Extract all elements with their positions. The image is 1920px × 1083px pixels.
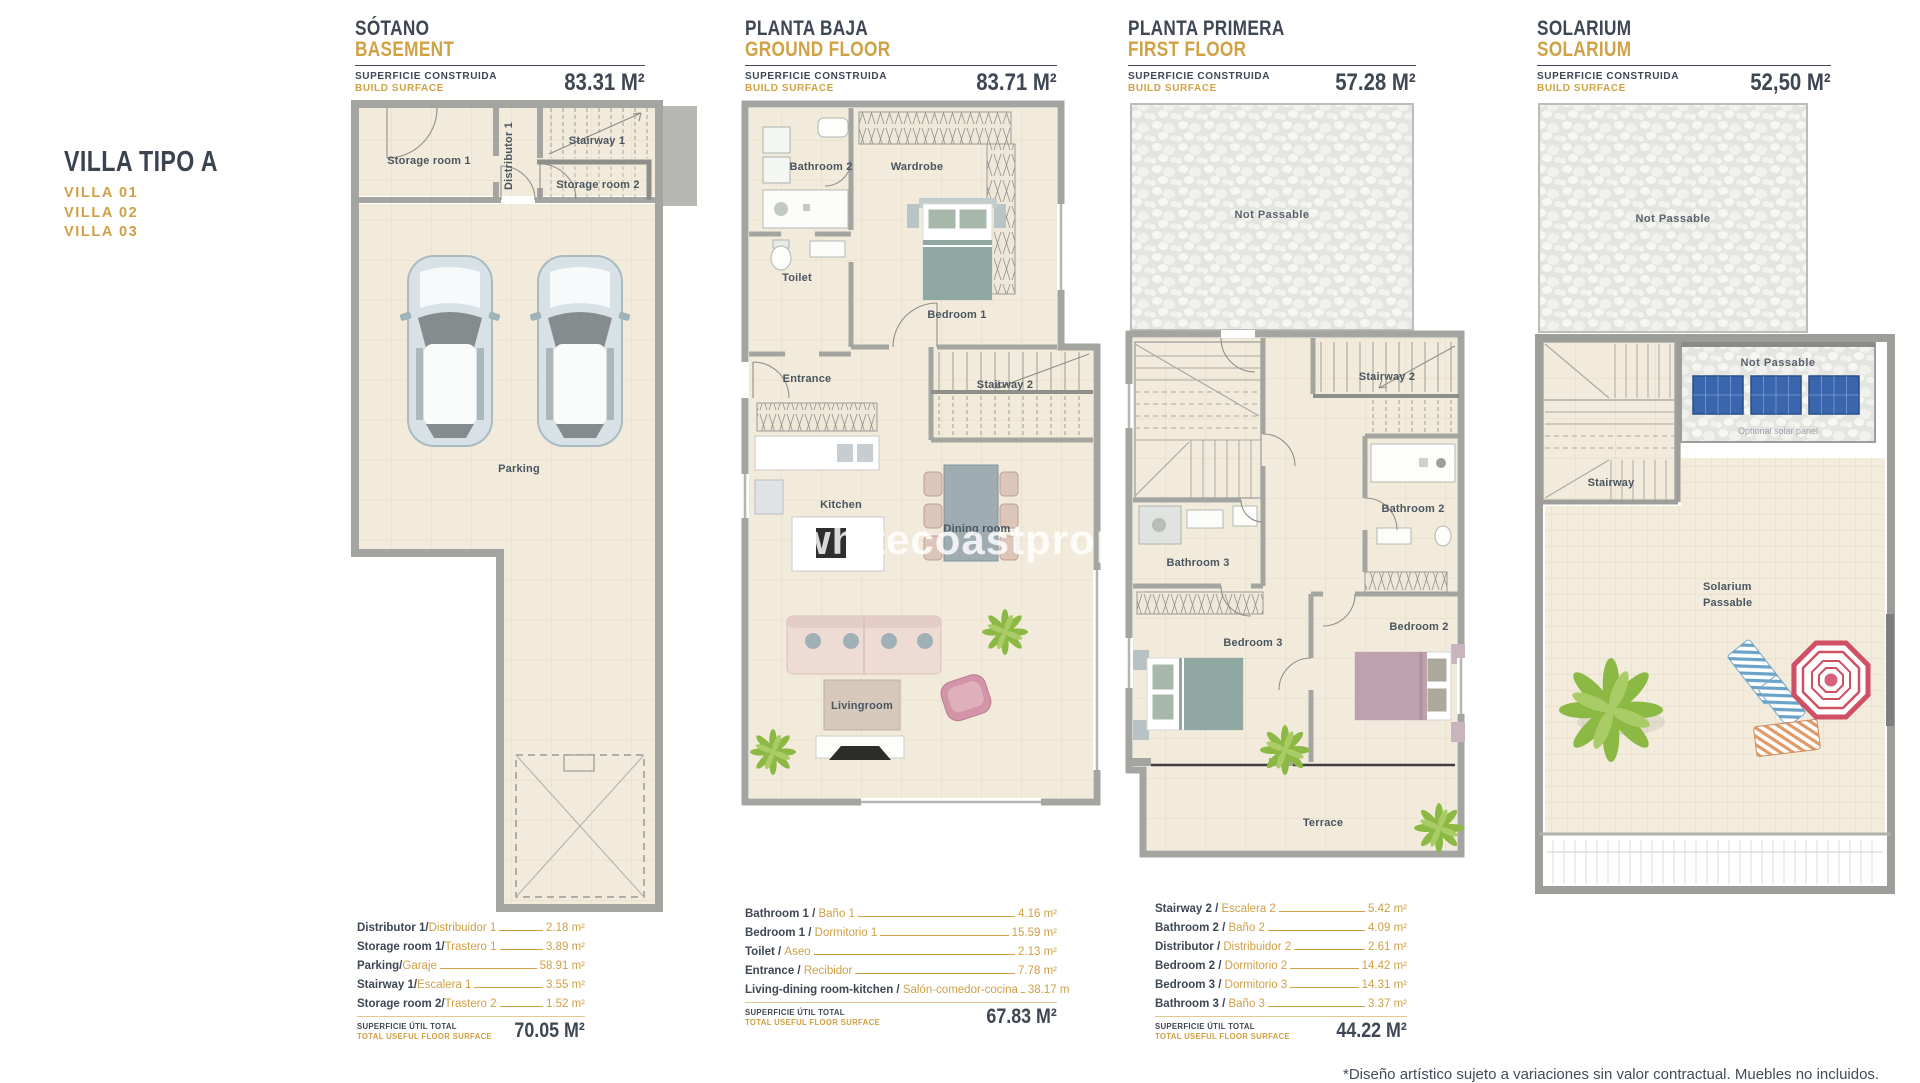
solar-panel-icon bbox=[1751, 376, 1801, 414]
surface-label-es: SUPERFICIE CONSTRUIDA bbox=[745, 71, 887, 83]
surface-label-en: BUILD SURFACE bbox=[1537, 83, 1679, 95]
legend-room-es: Baño 2 bbox=[1228, 922, 1264, 934]
room-label-storage1: Storage room 1 bbox=[387, 155, 471, 167]
wardrobe-hatch bbox=[859, 112, 1011, 144]
legend-room-en: Bathroom 2 / bbox=[1155, 922, 1228, 934]
total-label-en: TOTAL USEFUL FLOOR SURFACE bbox=[1155, 1032, 1290, 1042]
plan-title-es: SOLARIUM bbox=[1537, 18, 1778, 39]
room-label-toilet: Toilet bbox=[782, 272, 812, 284]
room-label-parking: Parking bbox=[498, 463, 540, 475]
legend-room-area: 3.89 m² bbox=[546, 941, 585, 953]
total-label-en: TOTAL USEFUL FLOOR SURFACE bbox=[745, 1018, 880, 1028]
car-icon bbox=[529, 256, 630, 446]
total-value: 67.83 M² bbox=[987, 1005, 1057, 1029]
legend-room-es: Trastero 2 bbox=[445, 998, 497, 1010]
plan-title-en: GROUND FLOOR bbox=[745, 39, 1001, 60]
ground-floorplan: Bathroom 2 Wardrobe Toilet Bedroom 1 Ent… bbox=[741, 100, 1111, 810]
villa-item-03: VILLA 03 bbox=[64, 223, 138, 243]
legend-room-en: Bathroom 1 / bbox=[745, 908, 818, 920]
legend-room-area: 2.61 m² bbox=[1368, 941, 1407, 953]
legend-room-es: Dormitorio 1 bbox=[815, 927, 878, 939]
header-rule bbox=[1537, 65, 1831, 66]
legend-room-en: Parking/ bbox=[357, 960, 402, 972]
legend-room-es: Distribuidor 1 bbox=[429, 922, 497, 934]
area-value: 52,50 M² bbox=[1750, 69, 1831, 97]
legend-room-es: Garaje bbox=[402, 960, 437, 972]
legend-leader-line bbox=[1290, 968, 1358, 969]
sur­face-label-es: SUPERFICIE CONSTRUIDA bbox=[1128, 71, 1270, 83]
legend-row: Bathroom 2 / Baño 24.09 m² bbox=[1155, 915, 1407, 934]
legend-row: Parking/Garaje58.91 m² bbox=[357, 953, 585, 972]
room-label-living: Livingroom bbox=[831, 700, 893, 712]
legend-row: Bedroom 3 / Dormitorio 314.31 m² bbox=[1155, 972, 1407, 991]
legend-room-es: Recibidor bbox=[804, 965, 853, 977]
plan-header-first: PLANTA PRIMERA FIRST FLOOR SUPERFICIE CO… bbox=[1128, 18, 1416, 97]
first-floorplan: Not Passable Stairway 2 Bathroom 2 Bathr… bbox=[1125, 98, 1465, 870]
tv-icon bbox=[816, 736, 904, 760]
plan-title-en: FIRST FLOOR bbox=[1128, 39, 1364, 60]
total-value: 44.22 M² bbox=[1337, 1019, 1407, 1043]
legend-row: Distributor 1/Distribuidor 12.18 m² bbox=[357, 915, 585, 934]
legend-total: SUPERFICIE ÚTIL TOTAL TOTAL USEFUL FLOOR… bbox=[745, 1002, 1057, 1029]
plant-icon bbox=[750, 729, 796, 775]
room-label-not-passable: Not Passable bbox=[1234, 209, 1309, 221]
legend-room-en: Toilet / bbox=[745, 946, 784, 958]
legend-row: Bathroom 3 / Baño 33.37 m² bbox=[1155, 991, 1407, 1010]
legend-first: Stairway 2 / Escalera 25.42 m² Bathroom … bbox=[1155, 896, 1407, 1043]
room-label-stairway1: Stairway 1 bbox=[569, 135, 625, 147]
legend-room-area: 5.42 m² bbox=[1368, 903, 1407, 915]
legend-leader-line bbox=[1268, 930, 1365, 931]
legend-room-area: 14.31 m² bbox=[1362, 979, 1407, 991]
legend-row: Bedroom 2 / Dormitorio 214.42 m² bbox=[1155, 953, 1407, 972]
surface-label-en: BUILD SURFACE bbox=[355, 83, 497, 95]
plant-icon bbox=[982, 609, 1028, 655]
legend-room-es: Aseo bbox=[784, 946, 810, 958]
label-optional-solar-panel: Optional solar panel bbox=[1738, 426, 1818, 436]
room-label-bathroom2: Bathroom 2 bbox=[789, 161, 852, 173]
header-rule bbox=[745, 65, 1057, 66]
villa-title: VILLA TIPO A bbox=[64, 146, 218, 179]
legend-room-en: Distributor 1/ bbox=[357, 922, 429, 934]
room-label-stairway2: Stairway 2 bbox=[977, 379, 1033, 391]
watermark: whitecoastproperties bbox=[798, 516, 1104, 568]
room-label-passable: Passable bbox=[1703, 597, 1752, 609]
solar-panel-icon bbox=[1693, 376, 1743, 414]
legend-room-en: Storage room 1/ bbox=[357, 941, 445, 953]
legend-room-area: 58.91 m² bbox=[540, 960, 585, 972]
room-label-not-passable: Not Passable bbox=[1635, 213, 1710, 225]
legend-leader-line bbox=[500, 949, 543, 950]
legend-room-es: Dormitorio 3 bbox=[1225, 979, 1288, 991]
legend-row: Distributor / Distribuidor 22.61 m² bbox=[1155, 934, 1407, 953]
legend-row: Storage room 2/Trastero 21.52 m² bbox=[357, 991, 585, 1010]
plan-header-solarium: SOLARIUM SOLARIUM SUPERFICIE CONSTRUIDA … bbox=[1537, 18, 1831, 97]
area-value: 57.28 M² bbox=[1335, 69, 1416, 97]
legend-room-es: Baño 3 bbox=[1228, 998, 1264, 1010]
total-label-en: TOTAL USEFUL FLOOR SURFACE bbox=[357, 1032, 492, 1042]
total-label-es: SUPERFICIE ÚTIL TOTAL bbox=[1155, 1022, 1290, 1032]
legend-basement: Distributor 1/Distribuidor 12.18 m² Stor… bbox=[357, 915, 585, 1043]
legend-room-es: Baño 1 bbox=[818, 908, 854, 920]
legend-room-area: 4.16 m² bbox=[1018, 908, 1057, 920]
legend-room-es: Salón-comedor-cocina bbox=[903, 984, 1018, 996]
wardrobe-hatch bbox=[1137, 592, 1263, 614]
legend-leader-line bbox=[880, 935, 1008, 936]
legend-room-es: Distribuidor 2 bbox=[1223, 941, 1291, 953]
legend-leader-line bbox=[858, 916, 1015, 917]
legend-room-en: Distributor / bbox=[1155, 941, 1223, 953]
legend-room-area: 15.59 m² bbox=[1012, 927, 1057, 939]
parasol-icon bbox=[1794, 643, 1868, 717]
room-label-kitchen: Kitchen bbox=[820, 499, 862, 511]
car-icon bbox=[399, 256, 500, 446]
room-label-distributor1: Distributor 1 bbox=[503, 122, 515, 190]
legend-ground: Bathroom 1 / Baño 14.16 m² Bedroom 1 / D… bbox=[745, 901, 1057, 1029]
room-label-bathroom3: Bathroom 3 bbox=[1166, 557, 1229, 569]
legend-leader-line bbox=[440, 968, 537, 969]
plan-title-es: SÓTANO bbox=[355, 18, 593, 39]
legend-room-area: 3.55 m² bbox=[546, 979, 585, 991]
legend-leader-line bbox=[1268, 1006, 1365, 1007]
room-label-wardrobe: Wardrobe bbox=[891, 161, 944, 173]
legend-leader-line bbox=[1021, 992, 1025, 993]
legend-room-en: Bedroom 1 / bbox=[745, 927, 815, 939]
legend-room-area: 2.18 m² bbox=[546, 922, 585, 934]
legend-row: Entrance / Recibidor7.78 m² bbox=[745, 958, 1057, 977]
surface-label-en: BUILD SURFACE bbox=[745, 83, 887, 95]
legend-room-en: Bedroom 3 / bbox=[1155, 979, 1225, 991]
villa-list: VILLA 01 VILLA 02 VILLA 03 bbox=[64, 184, 138, 243]
room-label-bedroom2: Bedroom 2 bbox=[1389, 621, 1448, 633]
room-label-stairway: Stairway bbox=[1588, 477, 1636, 489]
legend-row: Stairway 2 / Escalera 25.42 m² bbox=[1155, 896, 1407, 915]
plan-title-en: BASEMENT bbox=[355, 39, 593, 60]
room-label-entrance: Entrance bbox=[783, 373, 832, 385]
area-value: 83.31 M² bbox=[564, 69, 645, 97]
double-bed-icon bbox=[1133, 650, 1243, 740]
room-label-solarium: Solarium bbox=[1703, 581, 1752, 593]
palm-plant-icon bbox=[1559, 658, 1663, 762]
legend-room-es: Escalera 2 bbox=[1221, 903, 1275, 915]
legend-row: Stairway 1/Escalera 13.55 m² bbox=[357, 972, 585, 991]
basement-floorplan: Storage room 1 Distributor 1 Stairway 1 … bbox=[351, 100, 711, 912]
plan-title-es: PLANTA PRIMERA bbox=[1128, 18, 1364, 39]
header-rule bbox=[355, 65, 645, 66]
villa-item-02: VILLA 02 bbox=[64, 204, 138, 224]
legend-room-en: Bedroom 2 / bbox=[1155, 960, 1225, 972]
villa-item-01: VILLA 01 bbox=[64, 184, 138, 204]
plant-icon bbox=[1260, 725, 1310, 775]
legend-room-area: 2.13 m² bbox=[1018, 946, 1057, 958]
legend-total: SUPERFICIE ÚTIL TOTAL TOTAL USEFUL FLOOR… bbox=[1155, 1016, 1407, 1043]
legend-room-area: 4.09 m² bbox=[1368, 922, 1407, 934]
legend-room-area: 7.78 m² bbox=[1018, 965, 1057, 977]
legend-leader-line bbox=[1279, 911, 1365, 912]
surface-label-en: BUILD SURFACE bbox=[1128, 83, 1270, 95]
legend-room-en: Living-dining room-kitchen / bbox=[745, 984, 903, 996]
solar-panel-icon bbox=[1809, 376, 1859, 414]
plant-icon bbox=[1414, 803, 1464, 853]
entrance-closet-hatch bbox=[757, 403, 877, 431]
legend-leader-line bbox=[500, 1006, 543, 1007]
room-label-bedroom1: Bedroom 1 bbox=[927, 309, 986, 321]
room-label-not-passable-panels: Not Passable bbox=[1740, 357, 1815, 369]
room-label-bathroom2: Bathroom 2 bbox=[1381, 503, 1444, 515]
sofa-icon bbox=[787, 616, 941, 674]
legend-leader-line bbox=[814, 954, 1015, 955]
plan-header-ground: PLANTA BAJA GROUND FLOOR SUPERFICIE CONS… bbox=[745, 18, 1057, 97]
legend-leader-line bbox=[1294, 949, 1365, 950]
legend-leader-line bbox=[474, 987, 543, 988]
adjacent-wall bbox=[663, 106, 697, 206]
legend-row: Toilet / Aseo2.13 m² bbox=[745, 939, 1057, 958]
header-rule bbox=[1128, 65, 1416, 66]
legend-room-en: Bathroom 3 / bbox=[1155, 998, 1228, 1010]
legend-total: SUPERFICIE ÚTIL TOTAL TOTAL USEFUL FLOOR… bbox=[357, 1016, 585, 1043]
legend-row: Bathroom 1 / Baño 14.16 m² bbox=[745, 901, 1057, 920]
total-value: 70.05 M² bbox=[515, 1019, 585, 1043]
surface-label-es: SUPERFICIE CONSTRUIDA bbox=[355, 71, 497, 83]
plan-header-basement: SÓTANO BASEMENT SUPERFICIE CONSTRUIDA BU… bbox=[355, 18, 645, 97]
pergola-slats bbox=[1539, 834, 1891, 884]
legend-room-area: 14.42 m² bbox=[1362, 960, 1407, 972]
legend-room-en: Stairway 2 / bbox=[1155, 903, 1221, 915]
legend-room-es: Dormitorio 2 bbox=[1225, 960, 1288, 972]
room-label-stairway2: Stairway 2 bbox=[1359, 371, 1415, 383]
legend-room-en: Storage room 2/ bbox=[357, 998, 445, 1010]
disclaimer-text: *Diseño artístico sujeto a variaciones s… bbox=[1343, 1066, 1879, 1083]
legend-row: Storage room 1/Trastero 13.89 m² bbox=[357, 934, 585, 953]
room-label-terrace: Terrace bbox=[1303, 817, 1343, 829]
legend-leader-line bbox=[855, 973, 1015, 974]
area-value: 83.71 M² bbox=[976, 69, 1057, 97]
wall-dark-segment bbox=[1886, 614, 1894, 726]
legend-row: Bedroom 1 / Dormitorio 115.59 m² bbox=[745, 920, 1057, 939]
legend-room-en: Stairway 1/ bbox=[357, 979, 417, 991]
legend-leader-line bbox=[1290, 987, 1358, 988]
room-label-bedroom3: Bedroom 3 bbox=[1223, 637, 1282, 649]
legend-row: Living-dining room-kitchen / Salón-comed… bbox=[745, 977, 1057, 996]
wardrobe-hatch bbox=[1365, 572, 1447, 592]
solarium-floorplan: Not Passable Not Passable Optional solar… bbox=[1535, 98, 1895, 898]
legend-room-area: 38.17 m bbox=[1028, 984, 1070, 996]
plan-title-en: SOLARIUM bbox=[1537, 39, 1778, 60]
legend-room-en: Entrance / bbox=[745, 965, 804, 977]
plan-title-es: PLANTA BAJA bbox=[745, 18, 1001, 39]
total-label-es: SUPERFICIE ÚTIL TOTAL bbox=[745, 1008, 880, 1018]
legend-leader-line bbox=[499, 930, 543, 931]
legend-room-es: Escalera 1 bbox=[417, 979, 471, 991]
total-label-es: SUPERFICIE ÚTIL TOTAL bbox=[357, 1022, 492, 1032]
legend-room-area: 3.37 m² bbox=[1368, 998, 1407, 1010]
surface-label-es: SUPERFICIE CONSTRUIDA bbox=[1537, 71, 1679, 83]
legend-room-area: 1.52 m² bbox=[546, 998, 585, 1010]
legend-room-es: Trastero 1 bbox=[445, 941, 497, 953]
room-label-storage2: Storage room 2 bbox=[556, 179, 640, 191]
solar-panel-area bbox=[1681, 338, 1875, 456]
